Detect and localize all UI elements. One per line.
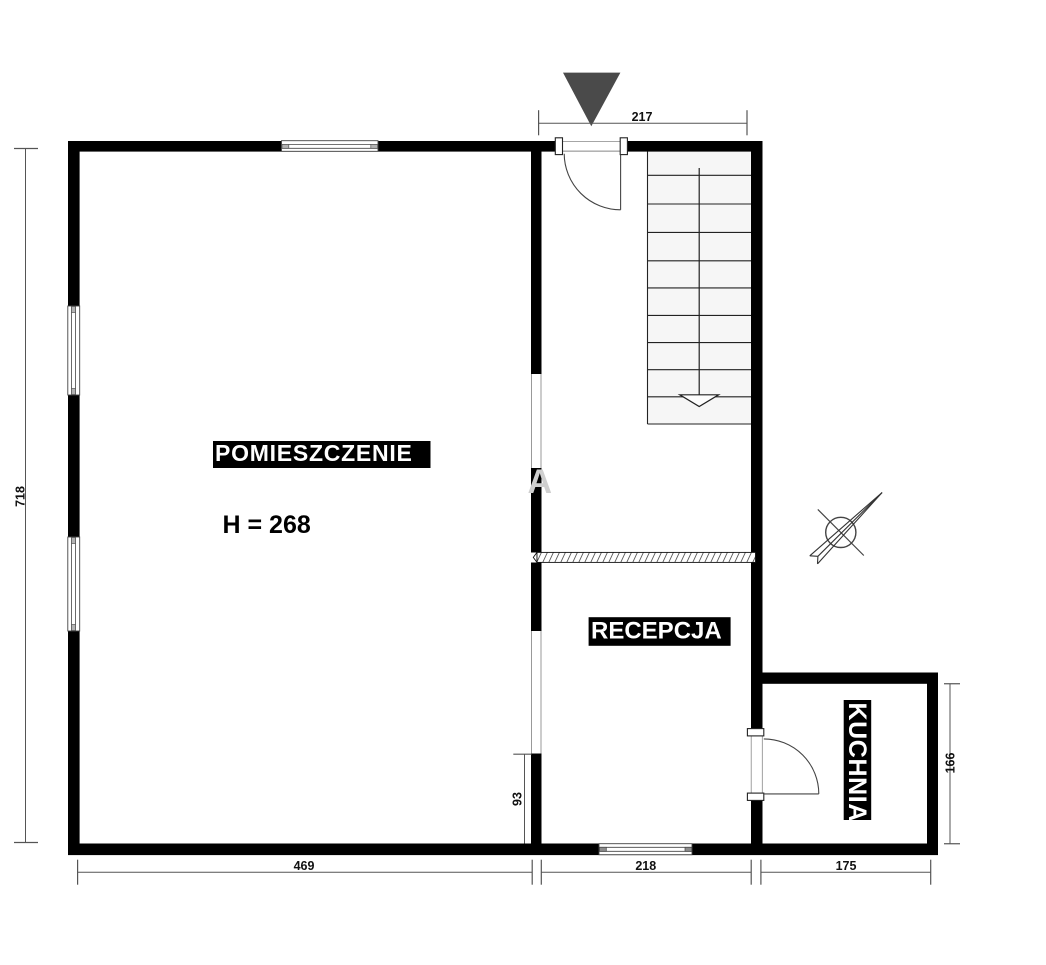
- svg-text:166: 166: [944, 753, 958, 774]
- svg-text:POMIESZCZENIE: POMIESZCZENIE: [215, 440, 413, 466]
- svg-text:718: 718: [14, 486, 28, 507]
- svg-text:KUCHNIA: KUCHNIA: [843, 703, 871, 822]
- svg-text:217: 217: [632, 110, 653, 124]
- svg-text:93: 93: [511, 792, 525, 806]
- svg-text:H = 268: H = 268: [223, 511, 311, 539]
- svg-text:175: 175: [836, 859, 857, 873]
- svg-text:218: 218: [635, 859, 656, 873]
- svg-text:RECEPCJA: RECEPCJA: [591, 617, 722, 644]
- svg-text:A: A: [528, 463, 553, 501]
- svg-text:469: 469: [294, 859, 315, 873]
